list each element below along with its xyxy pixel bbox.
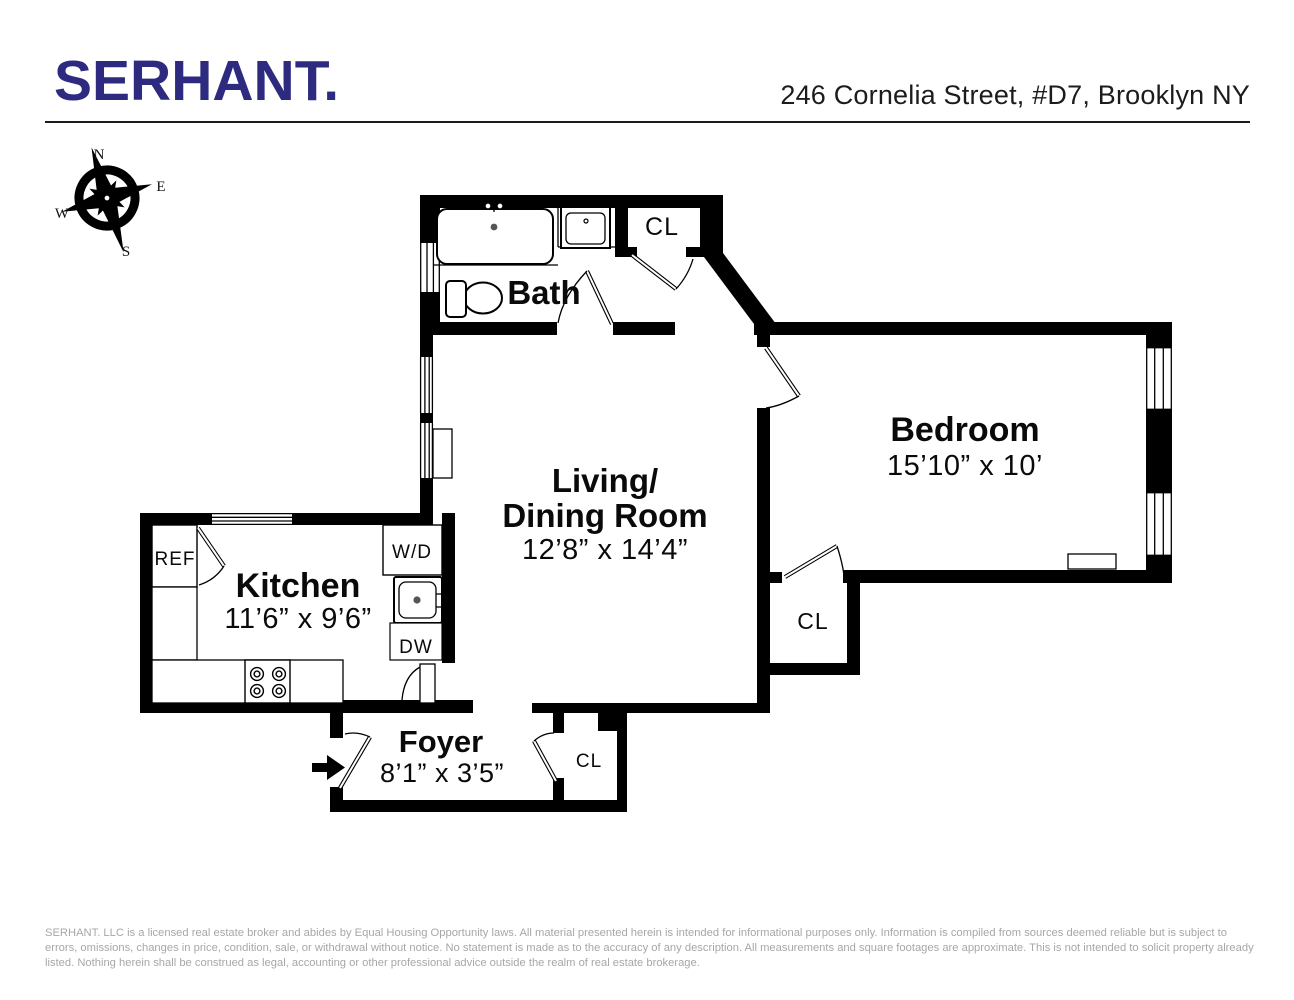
bedroom-window-lower [1146,492,1172,556]
bedroom-dims: 15’10” x 10’ [887,450,1043,482]
floorplan-page: SERHANT. 246 Cornelia Street, #D7, Brook… [0,0,1294,1000]
foyer-closet-door [534,733,556,781]
legal-disclaimer: SERHANT. LLC is a licensed real estate b… [45,926,1257,970]
living-window-upper [420,357,433,413]
compass-n: N [94,147,105,163]
hall-closet-label: CL [645,213,679,241]
bedroom-window-upper [1146,347,1172,410]
kitchen-sink [394,577,442,623]
compass-rose-icon: N E W S [47,134,169,267]
kitchen-window [212,513,292,525]
bath-sink [558,207,615,248]
washer-dryer-label: W/D [392,542,432,563]
foyer-dims: 8’1” x 3’5” [380,758,504,788]
living-label-line1: Living/ [552,462,658,499]
dishwasher-label: DW [399,637,433,658]
living-radiator [433,429,452,478]
kitchen-door [402,664,435,703]
toilet [446,281,502,317]
kitchen-dims: 11’6” x 9’6” [224,603,371,635]
bedroom-label: Bedroom [890,411,1039,449]
stove [245,660,290,703]
foyer-label: Foyer [399,724,483,759]
compass-e: E [156,179,165,195]
compass-w: W [55,206,70,222]
bedroom-closet-door [785,546,844,577]
foyer-closet-label: CL [576,751,602,772]
refrigerator-label: REF [155,549,196,570]
living-dims: 12’8” x 14’4” [522,534,688,566]
living-window-lower [420,423,433,478]
kitchen-label: Kitchen [236,567,361,605]
living-label-line2: Dining Room [502,497,707,534]
bedroom-closet-label: CL [797,608,828,634]
bath-label: Bath [507,274,580,311]
compass-s: S [122,244,130,260]
entry-arrow-icon [312,755,345,780]
bedroom-door [766,348,799,408]
refrigerator-door [198,528,224,585]
entry-door [340,733,370,788]
hall-closet-door [632,255,693,289]
bathtub [437,203,553,264]
floorplan-drawing: N E W S [0,0,1294,1000]
bedroom-radiator [1068,554,1116,569]
